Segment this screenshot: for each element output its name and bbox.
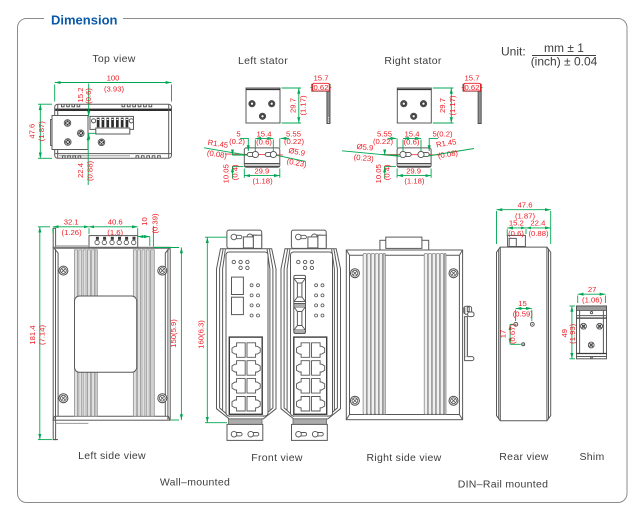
svg-text:(0.4): (0.4) (383, 164, 392, 180)
svg-text:181.4: 181.4 (28, 325, 37, 345)
svg-text:Dimension: Dimension (51, 13, 118, 28)
svg-text:(0.23): (0.23) (353, 153, 374, 164)
svg-text:29.9: 29.9 (406, 166, 421, 175)
svg-text:(inch) ± 0.04: (inch) ± 0.04 (531, 55, 598, 69)
svg-text:15.2: 15.2 (509, 219, 524, 228)
svg-text:(3.93): (3.93) (104, 85, 125, 94)
svg-text:(0.08): (0.08) (437, 148, 459, 160)
svg-text:Top view: Top view (92, 53, 135, 65)
svg-text:(0.88): (0.88) (528, 229, 549, 238)
svg-text:DIN–Rail mounted: DIN–Rail mounted (458, 479, 549, 491)
svg-text:(1.87): (1.87) (37, 121, 46, 142)
svg-text:(0.62): (0.62) (311, 83, 332, 92)
svg-text:(7.14): (7.14) (37, 325, 46, 346)
svg-text:27: 27 (588, 285, 597, 294)
svg-text:10.05: 10.05 (222, 164, 231, 183)
svg-text:Right stator: Right stator (384, 55, 441, 67)
svg-text:mm ± 1: mm ± 1 (544, 41, 584, 55)
svg-text:150(5.9): 150(5.9) (169, 319, 178, 348)
svg-text:29.9: 29.9 (254, 166, 269, 175)
svg-text:17: 17 (498, 330, 507, 339)
svg-text:100: 100 (107, 74, 120, 83)
svg-text:22.4: 22.4 (76, 162, 85, 178)
svg-text:(1.18): (1.18) (253, 177, 274, 186)
svg-text:Shim: Shim (579, 451, 604, 463)
svg-text:15.7: 15.7 (314, 74, 329, 83)
svg-text:(1.17): (1.17) (298, 95, 307, 116)
svg-text:Left stator: Left stator (238, 55, 288, 67)
svg-text:10.05: 10.05 (374, 164, 383, 183)
svg-text:(0.4): (0.4) (230, 164, 239, 180)
svg-text:10: 10 (140, 217, 149, 226)
svg-text:(1.17): (1.17) (448, 95, 457, 116)
svg-text:160(6.3): 160(6.3) (197, 320, 206, 349)
svg-text:Front view: Front view (251, 452, 303, 464)
svg-text:(0.62): (0.62) (462, 83, 483, 92)
svg-text:(1.06): (1.06) (582, 295, 603, 304)
svg-text:(0.39): (0.39) (150, 213, 159, 234)
svg-text:15.7: 15.7 (465, 74, 480, 83)
svg-text:(0.23): (0.23) (286, 157, 308, 170)
svg-text:Right side view: Right side view (366, 452, 441, 464)
svg-text:40.6: 40.6 (108, 217, 123, 226)
svg-text:22.4: 22.4 (530, 219, 546, 228)
svg-text:32.1: 32.1 (64, 217, 79, 226)
svg-text:(0.88): (0.88) (86, 161, 95, 182)
svg-text:47.6: 47.6 (28, 124, 37, 139)
svg-text:Left side view: Left side view (78, 450, 146, 462)
svg-text:(0.6): (0.6) (508, 229, 524, 238)
svg-text:(1.26): (1.26) (62, 228, 83, 237)
svg-text:Ø5.9: Ø5.9 (356, 142, 374, 153)
svg-text:15: 15 (518, 299, 527, 308)
svg-text:29.7: 29.7 (438, 98, 447, 113)
svg-text:Wall–mounted: Wall–mounted (160, 477, 230, 489)
svg-text:(0.59): (0.59) (513, 309, 534, 318)
svg-text:29.7: 29.7 (288, 98, 297, 113)
svg-text:Unit:: Unit: (501, 45, 526, 59)
svg-text:R1.45: R1.45 (435, 137, 457, 149)
svg-text:(0.67): (0.67) (508, 324, 517, 345)
svg-text:(0.08): (0.08) (206, 148, 228, 160)
svg-text:(0.6): (0.6) (84, 88, 93, 104)
svg-text:47.6: 47.6 (518, 201, 533, 210)
svg-text:(1.18): (1.18) (404, 177, 425, 186)
svg-text:Rear view: Rear view (499, 451, 548, 463)
svg-text:(1.93): (1.93) (568, 323, 577, 344)
svg-text:(1.6): (1.6) (107, 228, 123, 237)
